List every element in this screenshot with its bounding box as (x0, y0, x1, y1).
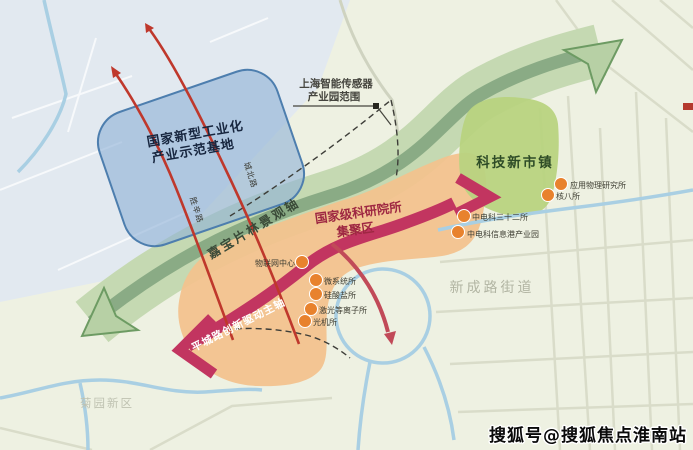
label-iot-center: 物联网中心 (255, 258, 295, 268)
dot-nuclear-8 (542, 189, 555, 202)
dot-optics (299, 315, 312, 328)
district-xinchenglu: 新成路街道 (450, 280, 535, 296)
map-svg: 新成路街道 菊园新区 嘉宝片林景观轴 平城路创新驱动主轴 胜辛路 城北路 国家新… (0, 0, 693, 450)
label-optics: 光机所 (313, 317, 337, 327)
label-cetc-info-park: 中电科信息港产业园 (467, 229, 539, 239)
dot-applied-physics (555, 178, 568, 191)
sensor-park-label-line2: 产业园范围 (308, 90, 361, 103)
label-nuclear-8: 核八所 (556, 191, 580, 201)
label-ceramics: 硅酸盐所 (324, 290, 356, 300)
dot-cetc-info-park (452, 226, 465, 239)
district-juyuan: 菊园新区 (80, 396, 134, 410)
tech-town-label: 科技新市镇 (476, 154, 554, 171)
dot-cetc-32 (458, 210, 471, 223)
legend-fragment (683, 103, 693, 110)
planning-map: 新成路街道 菊园新区 嘉宝片林景观轴 平城路创新驱动主轴 胜辛路 城北路 国家新… (0, 0, 693, 450)
dot-microsystem (310, 274, 323, 287)
label-applied-physics: 应用物理研究所 (570, 180, 626, 190)
sensor-park-label-line1: 上海智能传感器 (299, 77, 373, 90)
dot-iot-center (296, 256, 309, 269)
label-cetc-32: 中电科三十二所 (472, 212, 528, 222)
dot-ceramics (310, 288, 323, 301)
label-microsystem: 微系统所 (324, 276, 356, 286)
label-laser-plasma: 激光等离子所 (319, 305, 367, 315)
watermark: 搜狐号@搜狐焦点淮南站 (489, 421, 687, 446)
dot-laser-plasma (305, 303, 318, 316)
